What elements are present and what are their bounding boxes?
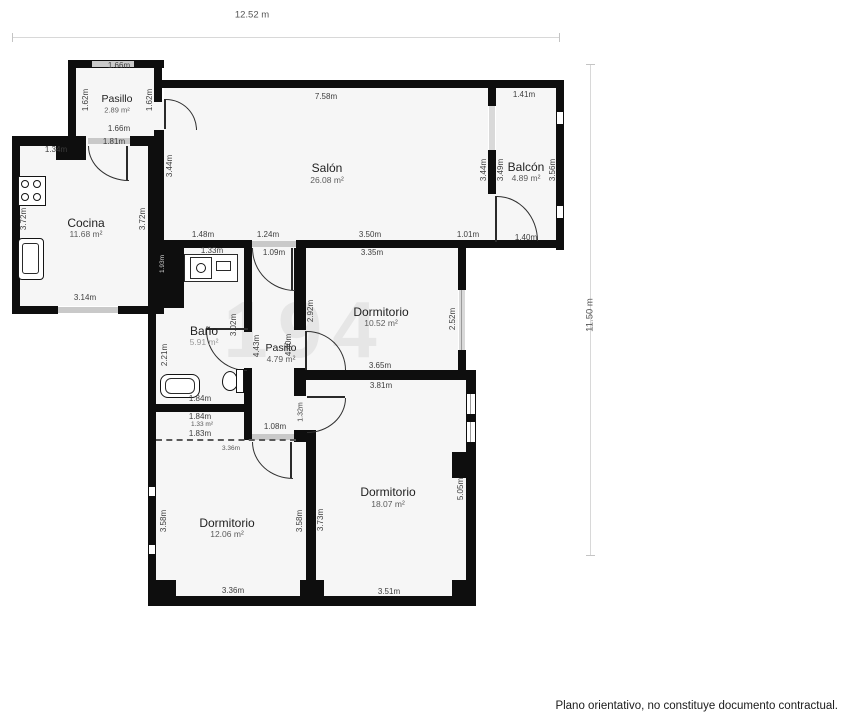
wall <box>130 136 164 146</box>
room-label-dorm-left: Dormitorio <box>199 517 254 529</box>
room-area-bano: 5.91 m² <box>190 338 219 347</box>
dim-d2-left: 3.73m <box>317 509 325 531</box>
dim-salon-b3: 3.50m <box>359 231 381 239</box>
window-line <box>470 394 471 414</box>
door-leaf <box>307 396 345 398</box>
wall <box>12 306 58 314</box>
dim-d3-right: 3.58m <box>296 510 304 532</box>
wall-column <box>452 580 476 596</box>
room-label-entry-hall: Pasillo <box>102 94 133 105</box>
floor-door-gap <box>154 100 164 130</box>
wall <box>306 442 316 596</box>
dim-total-width: 12.52 m <box>235 10 269 20</box>
room-label-salon: Salón <box>312 162 343 174</box>
dim-salon-b2: 1.24m <box>257 231 279 239</box>
dim-d1-left: 2.92m <box>307 300 315 322</box>
window <box>58 307 118 313</box>
wall <box>556 80 564 250</box>
dim-ep-right: 1.62m <box>146 89 154 111</box>
wall <box>244 248 252 332</box>
toilet-tank-icon <box>236 369 244 393</box>
dim-salon-b1: 1.48m <box>192 231 214 239</box>
dim-balcon-right: 3.56m <box>549 159 557 181</box>
bathtub-inner-icon <box>165 378 195 394</box>
dim-d2-right: 5.05m <box>457 478 465 500</box>
washbasin-bowl-icon <box>196 263 206 273</box>
dim-d3-dash: 3.36m <box>222 446 240 453</box>
window <box>467 394 475 414</box>
wall <box>148 306 156 410</box>
room-area-balcon: 4.89 m² <box>512 174 541 183</box>
room-label-dorm-right: Dormitorio <box>360 486 415 498</box>
dim-closet-bottom: 1.83m <box>189 430 211 438</box>
room-area-dorm-right: 18.07 m² <box>371 500 405 509</box>
window-notch <box>149 487 155 496</box>
dim-d3-bottom: 3.36m <box>222 587 244 595</box>
wall <box>294 248 306 330</box>
room-area-cocina: 11.68 m² <box>70 230 103 239</box>
window-line <box>461 290 462 350</box>
dimension-tick <box>12 33 13 42</box>
dim-hall-top: 1.09m <box>263 249 285 257</box>
dim-cocina-right: 3.72m <box>139 208 147 230</box>
dimension-line-top <box>12 37 560 38</box>
dim-salon-top: 7.58m <box>315 93 337 101</box>
wall <box>156 404 246 412</box>
room-label-bano: Baño <box>190 325 218 337</box>
window <box>467 422 475 442</box>
dim-cocina-left: 3.72m <box>20 208 28 230</box>
dim-ep-top: 1.66m <box>108 62 130 70</box>
room-area-dorm-left: 12.06 m² <box>210 530 244 539</box>
dim-d1-right: 2.52m <box>449 308 457 330</box>
dim-salon-right: 3.44m <box>480 159 488 181</box>
wall <box>294 368 306 396</box>
wall <box>458 248 466 290</box>
wall <box>458 350 466 370</box>
wall <box>148 408 156 606</box>
dim-hall-left: 4.43m <box>253 335 261 357</box>
window-notch <box>557 112 563 124</box>
door-leaf <box>126 146 128 180</box>
door-leaf <box>291 248 293 290</box>
wall <box>488 150 496 194</box>
wall-column <box>148 580 176 596</box>
dim-salon-b4: 1.01m <box>457 231 479 239</box>
dim-cocina-top: 1.34m <box>45 146 67 154</box>
wall-column <box>300 580 324 596</box>
dim-ep-bottom: 1.66m <box>108 125 130 133</box>
dim-cocina-door: 1.81m <box>103 138 125 146</box>
wall <box>488 80 496 106</box>
dim-d3-left: 3.58m <box>160 510 168 532</box>
door-leaf <box>495 196 497 242</box>
dimension-tick <box>586 555 595 556</box>
dim-salon-left: 3.44m <box>166 155 174 177</box>
window-notch <box>557 206 563 218</box>
disclaimer-text: Plano orientativo, no constituye documen… <box>555 700 838 712</box>
room-area-entry-hall: 2.89 m² <box>104 106 129 114</box>
dim-closet-area: 1.33 m² <box>191 422 213 429</box>
stove-burner-icon <box>33 193 41 201</box>
dim-balcon-bottom: 1.40m <box>515 234 537 242</box>
room-label-balcon: Balcón <box>508 161 545 173</box>
dim-hall-bottom: 1.08m <box>264 423 286 431</box>
dim-ep-left: 1.62m <box>82 89 90 111</box>
kitchen-sink-basin-icon <box>22 243 39 274</box>
window-glass-door <box>489 106 495 150</box>
wall <box>148 146 156 246</box>
dim-bano-bottom: 1.84m <box>189 395 211 403</box>
dim-d2-top: 3.81m <box>370 382 392 390</box>
wall-column <box>452 452 476 478</box>
door-leaf <box>290 442 292 478</box>
wall-shaft <box>148 240 184 308</box>
dimension-tick <box>559 33 560 42</box>
room-label-dorm-top: Dormitorio <box>353 306 408 318</box>
wall <box>148 596 476 606</box>
dim-cocina-bottom: 3.14m <box>74 294 96 302</box>
wall <box>154 80 564 88</box>
dashed-boundary <box>156 439 296 441</box>
stove-burner-icon <box>21 193 29 201</box>
wall <box>68 60 76 144</box>
window-line <box>470 422 471 442</box>
dim-balcon-left: 3.49m <box>497 159 505 181</box>
door-leaf <box>164 99 166 129</box>
dim-total-height: 11.50 m <box>585 298 595 332</box>
door-leaf <box>305 331 307 370</box>
dim-hall-right: 4.40m <box>285 334 293 356</box>
room-area-salon: 26.08 m² <box>310 176 344 185</box>
dim-balcon-top: 1.41m <box>513 91 535 99</box>
room-label-cocina: Cocina <box>67 217 104 229</box>
dim-bano-door: 3.02m <box>230 314 238 336</box>
stove-burner-icon <box>21 180 29 188</box>
window <box>459 290 465 350</box>
door-sill <box>252 241 296 247</box>
bath-mirror-icon <box>216 261 231 271</box>
stove-burner-icon <box>33 180 41 188</box>
room-area-dorm-top: 10.52 m² <box>364 319 398 328</box>
dim-d2-door: 1.32m <box>298 402 305 421</box>
dim-d1-bottom: 3.65m <box>369 362 391 370</box>
window-notch <box>149 545 155 554</box>
dim-shaft: 1.93m <box>160 255 167 273</box>
dim-d2-bottom: 3.51m <box>378 588 400 596</box>
floorplan-canvas: 194 <box>0 0 844 728</box>
dimension-tick <box>586 64 595 65</box>
dim-bano-left: 2.21m <box>161 344 169 366</box>
wall <box>306 370 476 380</box>
dim-d1-top: 3.35m <box>361 249 383 257</box>
dim-bano-top: 1.33m <box>201 247 223 255</box>
